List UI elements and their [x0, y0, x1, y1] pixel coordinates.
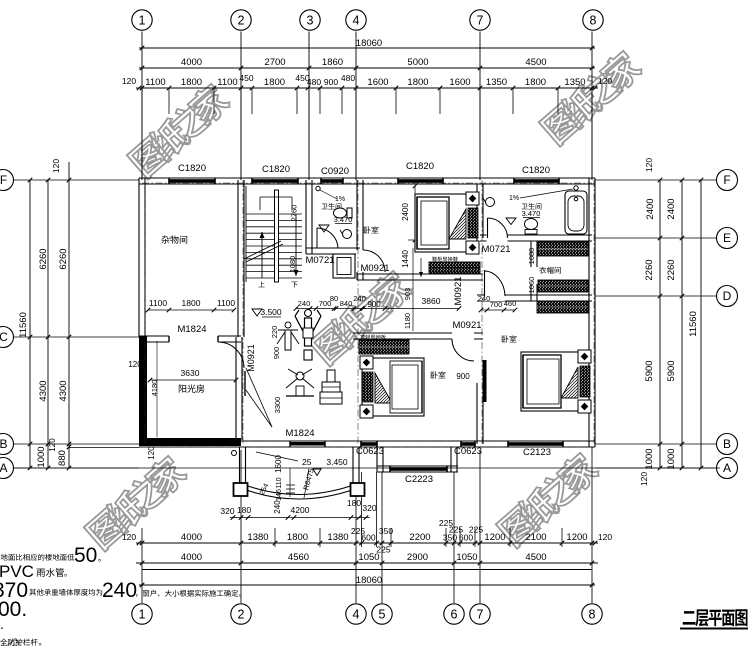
- svg-text:M0921: M0921: [453, 276, 464, 305]
- svg-text:2200: 2200: [409, 532, 430, 543]
- svg-text:11560: 11560: [18, 312, 29, 338]
- svg-text:880: 880: [57, 450, 68, 466]
- svg-text:8: 8: [589, 607, 596, 621]
- svg-text:1050: 1050: [456, 552, 477, 563]
- svg-text:3630: 3630: [181, 368, 200, 378]
- svg-text:1600: 1600: [274, 455, 283, 473]
- svg-text:840: 840: [340, 299, 353, 308]
- svg-text:4560: 4560: [288, 552, 309, 563]
- svg-text:4000: 4000: [181, 57, 202, 68]
- svg-text:M1824: M1824: [285, 428, 314, 439]
- svg-text:900: 900: [367, 300, 381, 309]
- svg-text:2700: 2700: [264, 57, 285, 68]
- svg-text:4000: 4000: [181, 552, 202, 563]
- svg-text:450: 450: [239, 73, 253, 83]
- svg-text:1000: 1000: [666, 448, 677, 469]
- svg-text:B: B: [0, 437, 8, 451]
- svg-text:4300: 4300: [58, 380, 69, 401]
- svg-text:1800: 1800: [525, 77, 546, 88]
- svg-text:320: 320: [220, 506, 234, 516]
- svg-text:A: A: [723, 461, 731, 475]
- svg-text:5: 5: [379, 607, 386, 621]
- svg-text:F: F: [0, 173, 7, 187]
- svg-text:C: C: [0, 330, 8, 344]
- svg-text:C2223: C2223: [405, 474, 433, 485]
- svg-text:900: 900: [324, 77, 338, 87]
- svg-text:6260: 6260: [38, 248, 49, 269]
- svg-text:1000: 1000: [36, 446, 47, 467]
- svg-text:2260: 2260: [644, 259, 655, 280]
- svg-text:6260: 6260: [58, 248, 69, 269]
- svg-text:1: 1: [139, 607, 146, 621]
- svg-text:480: 480: [341, 73, 355, 83]
- svg-text:C1820: C1820: [262, 164, 290, 175]
- svg-text:4180: 4180: [150, 380, 159, 397]
- svg-text:3300: 3300: [273, 397, 282, 414]
- svg-text:D: D: [723, 289, 732, 303]
- svg-text:F: F: [723, 173, 730, 187]
- svg-text:6: 6: [451, 607, 458, 621]
- svg-text:120: 120: [598, 532, 612, 542]
- svg-text:M0721: M0721: [481, 244, 510, 255]
- svg-text:1: 1: [139, 13, 146, 27]
- svg-text:240: 240: [353, 294, 366, 303]
- svg-text:4500: 4500: [525, 552, 546, 563]
- svg-text:5900: 5900: [644, 360, 655, 381]
- svg-text:146: 146: [276, 489, 283, 501]
- svg-text:180: 180: [347, 498, 361, 508]
- svg-text:4: 4: [353, 607, 360, 621]
- svg-text:C1820: C1820: [178, 163, 206, 174]
- svg-text:3.500: 3.500: [260, 307, 282, 317]
- svg-text:C1820: C1820: [406, 161, 434, 172]
- svg-text:600: 600: [361, 533, 375, 543]
- svg-text:18060: 18060: [356, 575, 382, 586]
- svg-text:C0623: C0623: [454, 446, 482, 457]
- svg-text:2400: 2400: [666, 198, 677, 219]
- svg-text:120: 120: [122, 76, 136, 86]
- svg-text:480: 480: [307, 77, 321, 87]
- svg-text:1100: 1100: [217, 77, 237, 88]
- svg-text:110: 110: [276, 477, 283, 488]
- svg-text:2400: 2400: [401, 203, 410, 221]
- svg-text:1380: 1380: [327, 532, 348, 543]
- svg-text:E: E: [723, 231, 731, 245]
- svg-text:2260: 2260: [666, 259, 677, 280]
- svg-text:220: 220: [270, 326, 279, 339]
- svg-text:1000: 1000: [644, 448, 655, 469]
- svg-text:1080: 1080: [527, 248, 536, 265]
- svg-text:4500: 4500: [525, 57, 546, 68]
- svg-text:7: 7: [477, 607, 484, 621]
- svg-text:18060: 18060: [356, 38, 382, 49]
- svg-text:4000: 4000: [181, 532, 202, 543]
- svg-text:2760: 2760: [290, 205, 299, 222]
- svg-text:120: 120: [128, 360, 142, 369]
- svg-text:1800: 1800: [181, 77, 202, 88]
- svg-text:1%: 1%: [509, 195, 519, 202]
- svg-text:700: 700: [490, 300, 503, 309]
- svg-text:1080: 1080: [288, 256, 297, 273]
- svg-text:1800: 1800: [182, 298, 201, 308]
- svg-text:2: 2: [238, 607, 245, 621]
- svg-text:C2123: C2123: [523, 447, 551, 458]
- svg-text:1200: 1200: [484, 532, 505, 543]
- svg-text:M0921: M0921: [452, 320, 481, 331]
- svg-text:2100: 2100: [525, 532, 546, 543]
- svg-text:1600: 1600: [449, 77, 470, 88]
- svg-text:8: 8: [590, 13, 597, 27]
- svg-text:120: 120: [598, 76, 612, 86]
- svg-text:225: 225: [439, 518, 453, 528]
- svg-text:120: 120: [48, 438, 57, 452]
- svg-text:1800: 1800: [264, 77, 285, 88]
- svg-text:120: 120: [644, 158, 654, 172]
- svg-text:5900: 5900: [666, 360, 677, 381]
- svg-text:225: 225: [469, 525, 483, 535]
- svg-text:900: 900: [456, 372, 470, 381]
- svg-text:120: 120: [51, 159, 61, 173]
- svg-text:C0623: C0623: [356, 446, 384, 457]
- svg-text:1600: 1600: [367, 77, 388, 88]
- svg-text:2400: 2400: [645, 198, 656, 219]
- svg-text:350: 350: [379, 526, 393, 536]
- svg-text:320: 320: [362, 503, 376, 513]
- svg-text:B: B: [723, 437, 731, 451]
- svg-text:1380: 1380: [247, 532, 268, 543]
- svg-text:120: 120: [122, 532, 136, 542]
- svg-text:1100: 1100: [145, 77, 165, 88]
- svg-text:1180: 1180: [403, 313, 412, 329]
- svg-text:1200: 1200: [566, 532, 587, 543]
- svg-text:460: 460: [504, 299, 517, 308]
- svg-text:80: 80: [330, 294, 338, 303]
- svg-text:00.: 00.: [0, 598, 27, 621]
- svg-text:240: 240: [102, 579, 137, 602]
- svg-text:900: 900: [272, 347, 281, 360]
- svg-text:1100: 1100: [149, 298, 168, 308]
- svg-text:50: 50: [74, 544, 97, 567]
- svg-text:1050: 1050: [358, 552, 379, 563]
- svg-text:240: 240: [298, 299, 311, 308]
- svg-text:A: A: [0, 461, 8, 475]
- svg-text:M1824: M1824: [177, 324, 206, 335]
- svg-text:1860: 1860: [322, 57, 343, 68]
- svg-text:C0920: C0920: [321, 166, 349, 177]
- svg-text:M0721: M0721: [305, 255, 334, 266]
- svg-text:3.450: 3.450: [326, 457, 348, 467]
- svg-text:1350: 1350: [486, 77, 507, 88]
- svg-text:2900: 2900: [407, 552, 428, 563]
- svg-text:3.470: 3.470: [334, 215, 353, 224]
- svg-text:1350: 1350: [564, 77, 585, 88]
- svg-text:3: 3: [307, 13, 314, 27]
- svg-text:M0921: M0921: [246, 344, 256, 372]
- svg-text:240: 240: [478, 294, 491, 303]
- svg-text:1060: 1060: [527, 277, 536, 294]
- svg-text:4200: 4200: [291, 505, 310, 515]
- svg-text:2: 2: [238, 13, 245, 27]
- svg-text:240: 240: [273, 500, 282, 514]
- svg-text:7: 7: [477, 13, 484, 27]
- svg-text:M0921: M0921: [360, 263, 389, 274]
- svg-text:C1820: C1820: [522, 165, 550, 176]
- svg-text:25: 25: [302, 457, 312, 467]
- svg-text:11560: 11560: [688, 311, 699, 337]
- svg-text:.: .: [0, 616, 4, 632]
- svg-text:3860: 3860: [422, 296, 441, 306]
- svg-text:180: 180: [237, 505, 251, 515]
- svg-text:120: 120: [147, 446, 156, 460]
- svg-text:4: 4: [353, 13, 360, 27]
- svg-text:5000: 5000: [407, 57, 428, 68]
- svg-text:4300: 4300: [38, 380, 49, 401]
- svg-text:1%: 1%: [335, 196, 345, 203]
- svg-text:120: 120: [639, 472, 649, 486]
- svg-text:1800: 1800: [287, 532, 308, 543]
- svg-text:3.470: 3.470: [522, 209, 541, 218]
- svg-text:1800: 1800: [407, 77, 428, 88]
- svg-text:1440: 1440: [401, 250, 410, 268]
- svg-text:1100: 1100: [217, 298, 236, 308]
- svg-text:903: 903: [403, 288, 412, 301]
